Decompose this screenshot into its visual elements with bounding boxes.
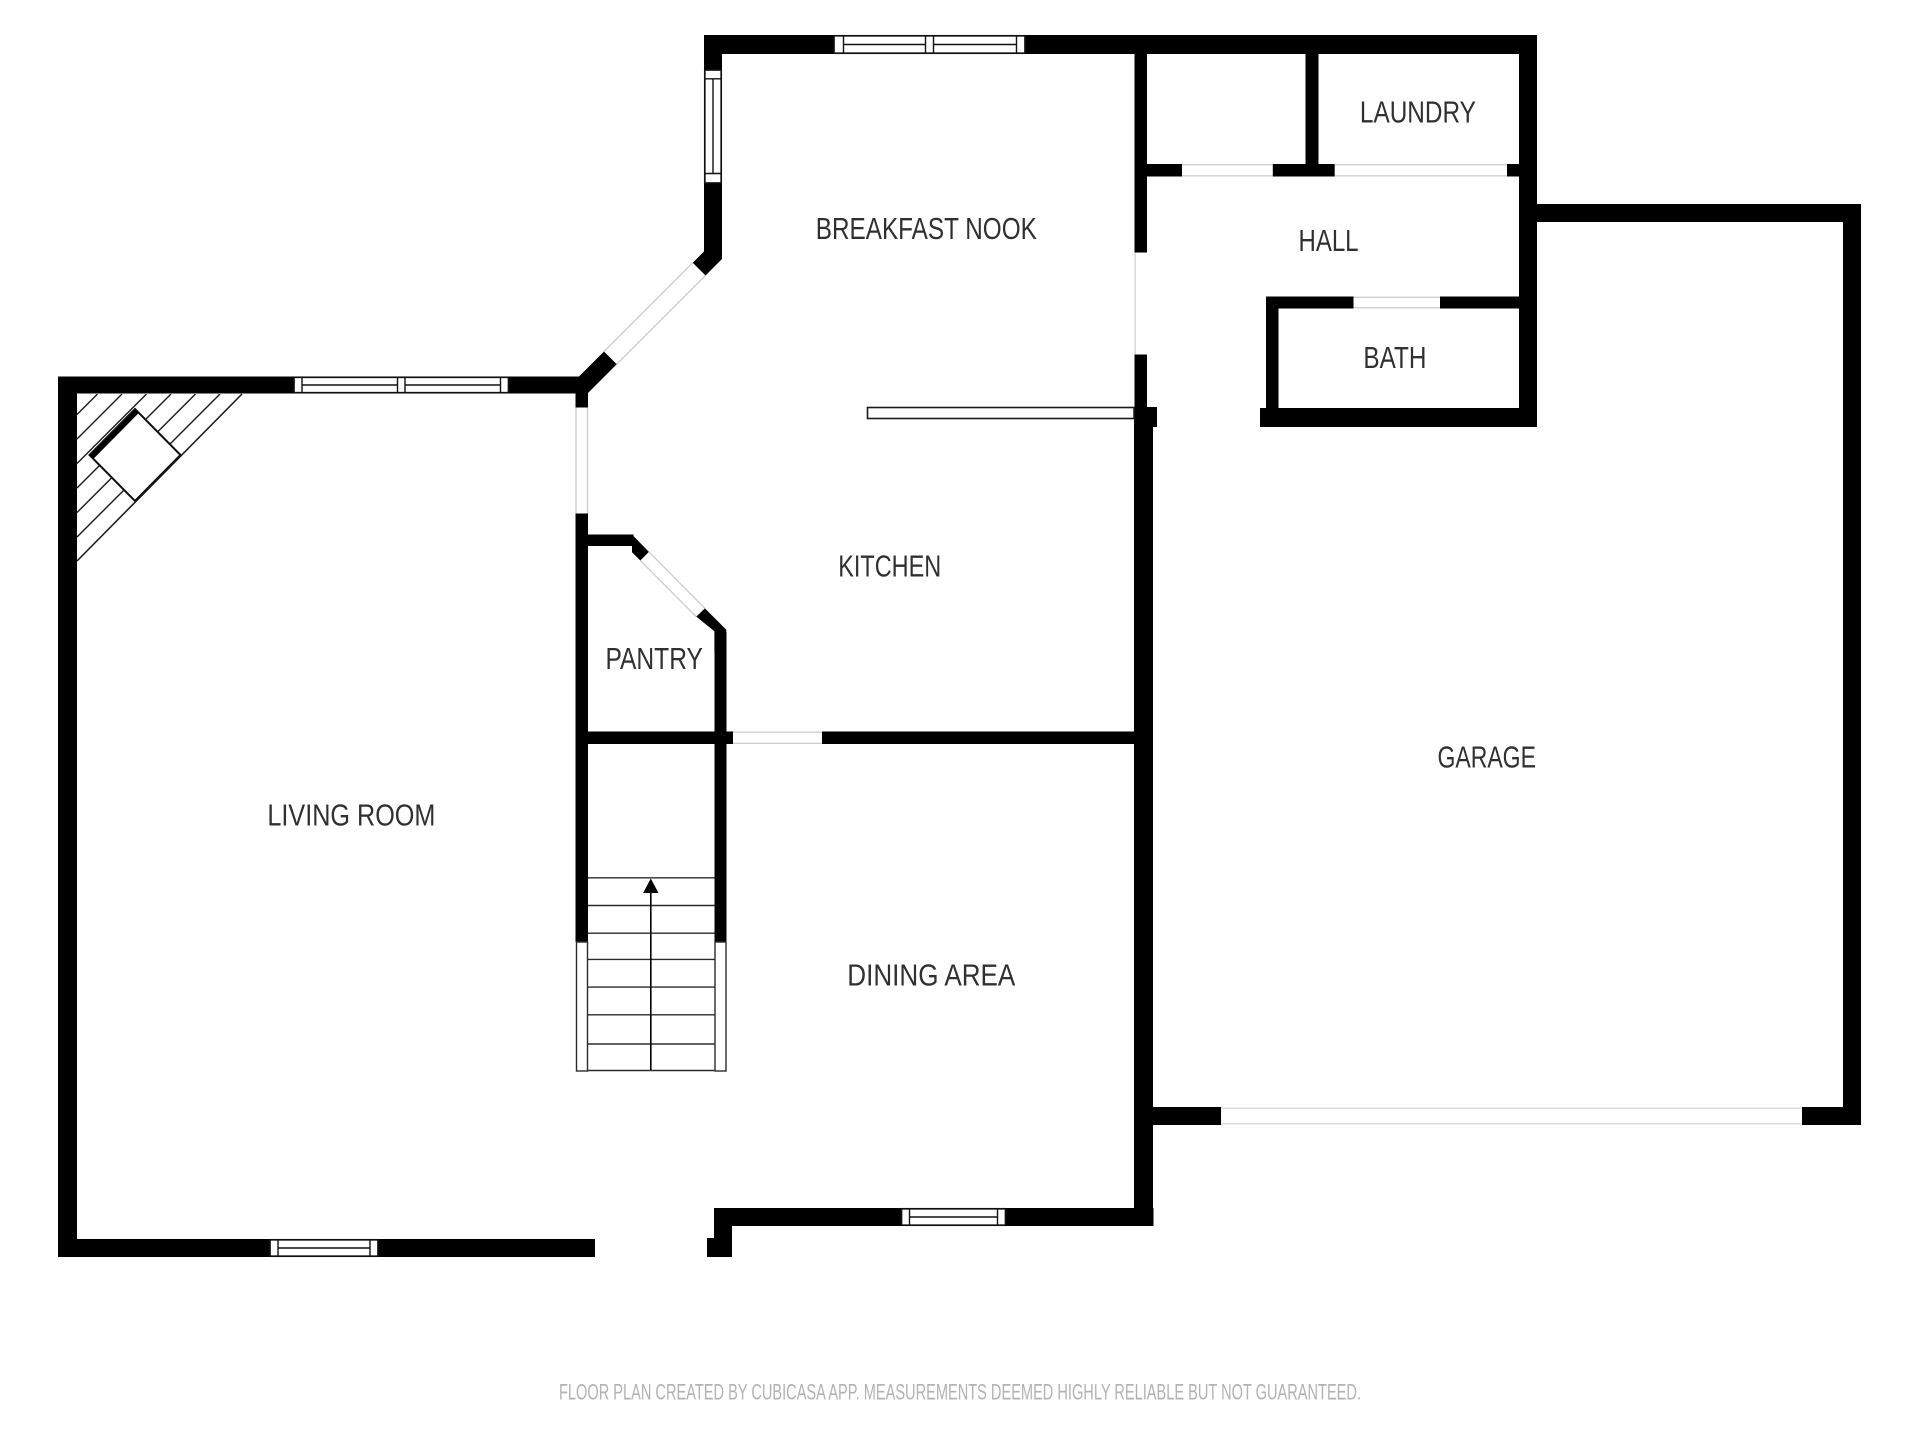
svg-text:DINING AREA: DINING AREA	[847, 957, 1015, 992]
svg-text:PANTRY: PANTRY	[605, 641, 703, 676]
svg-text:LAUNDRY: LAUNDRY	[1360, 94, 1476, 129]
svg-text:BATH: BATH	[1363, 340, 1426, 375]
svg-text:LIVING ROOM: LIVING ROOM	[267, 798, 435, 833]
svg-text:FLOOR PLAN CREATED BY CUBICASA: FLOOR PLAN CREATED BY CUBICASA APP. MEAS…	[559, 1379, 1361, 1404]
svg-text:GARAGE: GARAGE	[1437, 740, 1536, 775]
svg-text:KITCHEN: KITCHEN	[838, 549, 941, 584]
svg-text:HALL: HALL	[1299, 223, 1359, 258]
svg-text:BREAKFAST NOOK: BREAKFAST NOOK	[816, 211, 1037, 246]
